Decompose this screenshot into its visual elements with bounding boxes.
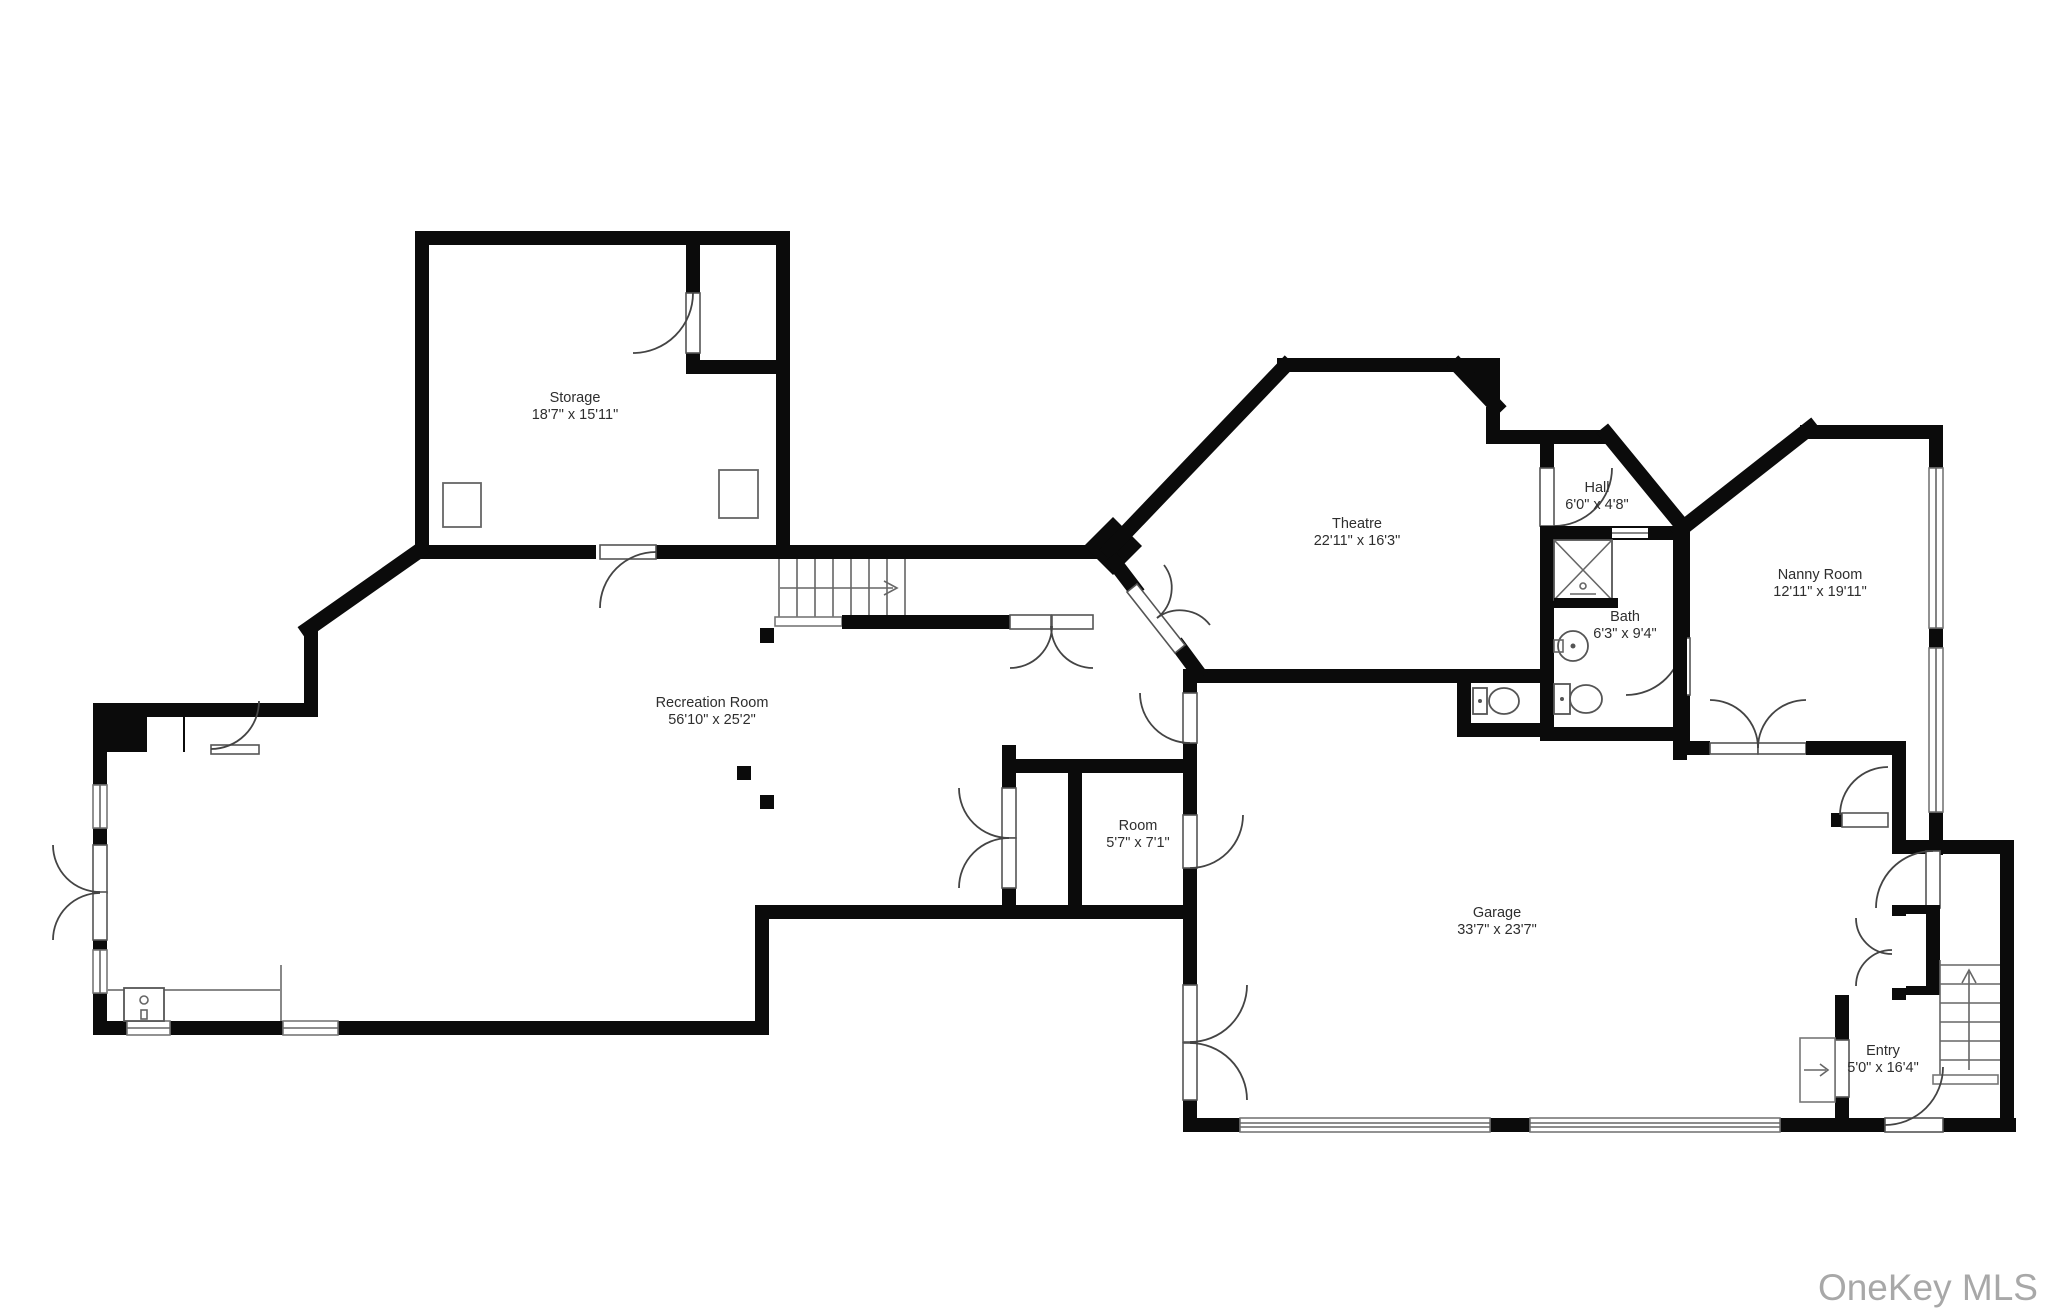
room-label: Bath	[1610, 609, 1640, 625]
wall-segment	[1926, 840, 1940, 851]
plan-detail	[1240, 1118, 1490, 1132]
door-from-room	[1183, 815, 1243, 868]
wall-segment	[776, 231, 790, 559]
sink	[1554, 631, 1588, 661]
storage-closet	[633, 245, 790, 374]
plan-detail	[1478, 699, 1482, 703]
wall-segment	[1068, 773, 1082, 905]
double-doors-corridor	[1010, 615, 1093, 668]
window	[1929, 648, 1943, 812]
room-dims: 5'7" x 7'1"	[1106, 835, 1169, 851]
wall-segment	[1906, 986, 1940, 995]
plan-detail	[1540, 468, 1554, 526]
wall-segment	[1183, 743, 1197, 815]
storage-door	[600, 545, 656, 608]
wall-segment	[415, 545, 596, 559]
plan-detail	[1183, 693, 1197, 743]
window	[93, 785, 107, 828]
wall-segment	[93, 828, 107, 845]
plan-detail	[1530, 1118, 1780, 1132]
wall-segment	[1002, 888, 1016, 919]
plan-detail	[1560, 697, 1564, 701]
wall-segment	[1277, 358, 1462, 372]
plan-detail	[1190, 815, 1243, 868]
wall-segment	[1540, 430, 1554, 468]
stairs-entry	[1933, 960, 2000, 1084]
plan-detail	[1758, 743, 1806, 754]
plan-detail	[1710, 700, 1758, 748]
wall-segment	[686, 245, 700, 293]
wall-diagonal	[308, 551, 419, 629]
wall-segment	[1835, 1097, 1849, 1132]
wall-segment	[93, 1021, 127, 1035]
wall-segment	[1892, 905, 1906, 916]
wall-segment	[1183, 1118, 1240, 1132]
wall-segment	[1183, 669, 1554, 683]
laundry-sink	[124, 988, 164, 1021]
plan-detail	[211, 745, 259, 754]
wall-segment	[1115, 563, 1134, 588]
door-to-recreation	[1140, 693, 1197, 743]
room-label: Recreation Room	[656, 695, 769, 711]
wall-segment	[185, 703, 311, 717]
wall-segment	[2000, 840, 2014, 1132]
room-label: Entry	[1866, 1043, 1901, 1059]
wall-segment	[415, 231, 790, 245]
wall-segment	[755, 905, 1197, 919]
floor-plan-canvas: Storage 18'7" x 15'11"	[0, 0, 2048, 1313]
floor-plan-page: Storage 18'7" x 15'11"	[0, 0, 2048, 1313]
room-dims: 12'11" x 19'11"	[1773, 584, 1867, 600]
wall-segment	[338, 1021, 769, 1035]
room-dims: 5'0" x 16'4"	[1847, 1060, 1918, 1076]
stairs-upper	[775, 517, 1142, 668]
wall-segment	[1457, 723, 1554, 737]
wall-segment	[1554, 598, 1618, 608]
plan-detail	[1002, 838, 1016, 888]
plan-detail	[1051, 626, 1093, 668]
garage-double-doors	[1183, 985, 1247, 1100]
plan-detail	[1052, 615, 1093, 629]
toilet	[1554, 684, 1602, 714]
theatre-diagonal-doors	[1115, 563, 1210, 671]
wall-segment	[1926, 908, 1940, 995]
french-doors-exterior	[53, 845, 107, 940]
room-bath: Bath 6'3" x 9'4"	[1540, 526, 1690, 741]
plan-detail	[600, 552, 656, 608]
room-dims: 56'10" x 25'2"	[668, 712, 756, 728]
nanny-double-doors	[1710, 700, 1806, 754]
wall-segment	[93, 703, 107, 785]
plan-detail	[1926, 851, 1940, 908]
stair-room-door	[1876, 851, 1940, 908]
plan-detail	[93, 892, 107, 940]
wall-segment	[1180, 648, 1197, 671]
wall-diagonal	[1680, 428, 1810, 530]
wall-segment	[1800, 425, 1943, 439]
plan-detail	[1856, 950, 1892, 986]
wall-segment	[415, 231, 429, 559]
plan-detail	[1489, 688, 1519, 714]
french-doors-room	[959, 788, 1016, 888]
wall-segment	[656, 545, 790, 559]
room-label: Room	[1119, 818, 1158, 834]
wall-segment	[686, 360, 790, 374]
plan-detail	[1840, 767, 1888, 815]
wall-segment	[1835, 995, 1849, 1040]
plan-detail	[1002, 788, 1016, 838]
room-dims: 33'7" x 23'7"	[1457, 922, 1537, 938]
plan-detail	[1570, 685, 1602, 713]
wall-segment	[93, 940, 107, 950]
garage-step	[1800, 1038, 1835, 1102]
wall-segment	[1183, 669, 1197, 693]
wall-segment	[1540, 526, 1554, 741]
plan-detail	[1571, 644, 1576, 649]
wall-notch	[147, 717, 183, 752]
watermark: OneKey MLS	[1818, 1267, 2038, 1308]
plan-detail	[1010, 615, 1051, 629]
wall-segment	[1929, 628, 1943, 648]
wall-segment	[686, 353, 700, 374]
wall-segment	[1892, 988, 1906, 1000]
wall-segment	[1002, 759, 1193, 773]
wall-segment	[1687, 741, 1710, 755]
room-theatre: Theatre 22'11" x 16'3"	[1110, 358, 1611, 683]
support-post	[719, 470, 758, 518]
support-post	[443, 483, 481, 527]
room-dims: 6'0" x 4'8"	[1565, 497, 1628, 513]
wall-segment	[755, 905, 769, 1035]
wall-segment	[1806, 741, 1906, 755]
plan-detail	[1010, 626, 1052, 668]
wall-diagonal	[1110, 366, 1285, 549]
room-dims: 22'11" x 16'3"	[1314, 533, 1401, 549]
plan-detail	[1876, 851, 1933, 908]
room-storage: Storage 18'7" x 15'11"	[415, 231, 790, 608]
wall-segment	[1780, 1118, 1885, 1132]
room-dims: 18'7" x 15'11"	[532, 407, 619, 423]
plan-detail	[1190, 985, 1247, 1042]
plan-detail	[1183, 985, 1197, 1042]
room-dims: 6'3" x 9'4"	[1593, 626, 1656, 642]
toilet-alcove	[1457, 683, 1554, 737]
wall-segment	[1929, 425, 1943, 468]
plan-detail	[1856, 918, 1892, 954]
room-small: Room 5'7" x 7'1"	[959, 745, 1193, 919]
closet-door-arc	[633, 293, 693, 353]
garage-door-sill	[1240, 1118, 1490, 1132]
plan-detail	[93, 845, 107, 893]
plan-detail	[1183, 1043, 1197, 1100]
room-label: Theatre	[1332, 516, 1382, 532]
column	[760, 628, 774, 643]
room-label: Garage	[1473, 905, 1521, 921]
plan-detail	[1842, 813, 1888, 827]
wall-segment	[1831, 813, 1842, 827]
vestibule-door	[1840, 767, 1888, 827]
wall-segment	[1892, 741, 1906, 854]
plan-detail	[1157, 565, 1172, 618]
wall-segment	[790, 545, 1100, 559]
wall-segment	[1490, 1118, 1530, 1132]
wall-segment	[1183, 868, 1197, 985]
plan-detail	[1183, 815, 1197, 868]
plan-detail	[1758, 700, 1806, 748]
wall-segment	[1673, 520, 1687, 760]
window	[283, 1021, 338, 1035]
garage-door-sill	[1530, 1118, 1780, 1132]
shower	[1554, 540, 1618, 608]
wall-segment	[1906, 905, 1940, 914]
room-label: Storage	[550, 390, 601, 406]
plan-detail	[1190, 1043, 1247, 1100]
window	[93, 950, 107, 993]
wall-segment	[170, 1021, 283, 1035]
stair-landing-edge	[775, 617, 842, 626]
stair-direction-arrow	[1962, 970, 1976, 1070]
wall-segment	[1892, 840, 2014, 854]
room-entry: Entry 5'0" x 16'4"	[1800, 741, 2014, 1132]
column	[737, 766, 751, 780]
window	[1929, 468, 1943, 628]
column	[760, 795, 774, 809]
window	[127, 1021, 170, 1035]
plan-detail	[1127, 584, 1185, 653]
plan-detail	[1710, 743, 1758, 754]
room-label: Nanny Room	[1778, 567, 1863, 583]
wall-segment	[842, 615, 1010, 629]
room-label: Hall	[1585, 480, 1610, 496]
wall-segment	[1540, 727, 1690, 741]
